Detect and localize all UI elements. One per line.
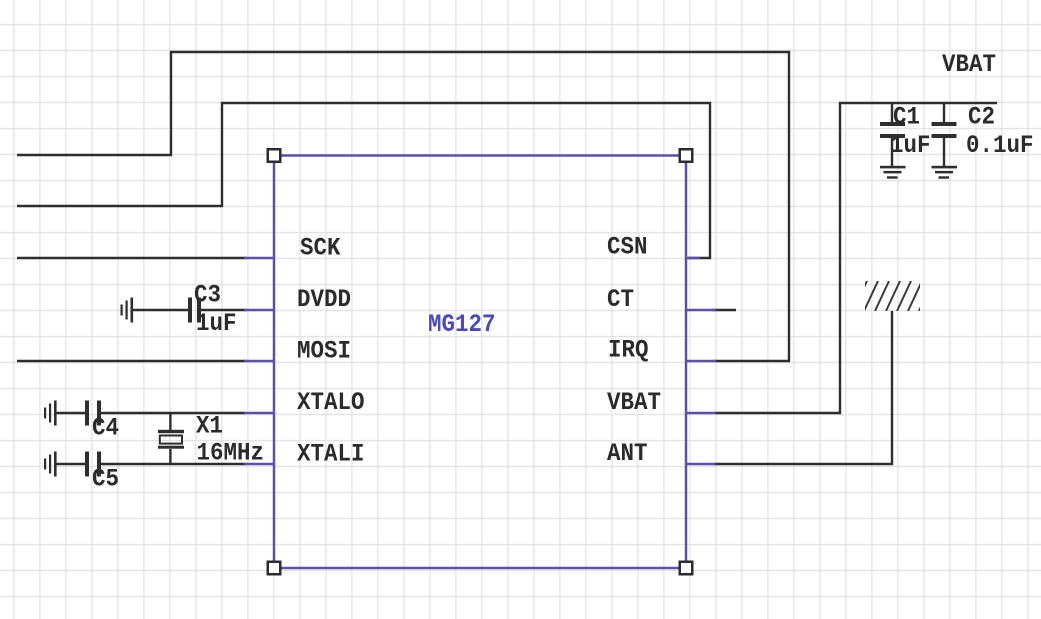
- svg-text:XTALI: XTALI: [297, 440, 364, 469]
- svg-text:IRQ: IRQ: [608, 336, 649, 365]
- svg-text:MOSI: MOSI: [297, 337, 351, 366]
- svg-text:C1: C1: [893, 103, 920, 132]
- svg-text:C4: C4: [92, 414, 119, 443]
- svg-text:C3: C3: [194, 281, 221, 310]
- svg-text:1uF: 1uF: [196, 310, 237, 339]
- svg-text:C2: C2: [968, 103, 995, 132]
- svg-text:C5: C5: [92, 465, 119, 494]
- svg-text:DVDD: DVDD: [297, 286, 351, 315]
- svg-text:SCK: SCK: [300, 234, 341, 263]
- svg-text:0.1uF: 0.1uF: [966, 132, 1033, 161]
- svg-text:X1: X1: [196, 412, 223, 441]
- svg-text:XTALO: XTALO: [297, 389, 364, 418]
- svg-text:MG127: MG127: [428, 311, 495, 340]
- svg-text:16MHz: 16MHz: [197, 439, 264, 468]
- svg-text:CSN: CSN: [607, 233, 648, 262]
- svg-text:ANT: ANT: [607, 440, 648, 469]
- svg-text:VBAT: VBAT: [607, 389, 661, 418]
- svg-text:1uF: 1uF: [890, 132, 931, 161]
- svg-text:CT: CT: [607, 286, 634, 315]
- svg-text:VBAT: VBAT: [942, 51, 996, 80]
